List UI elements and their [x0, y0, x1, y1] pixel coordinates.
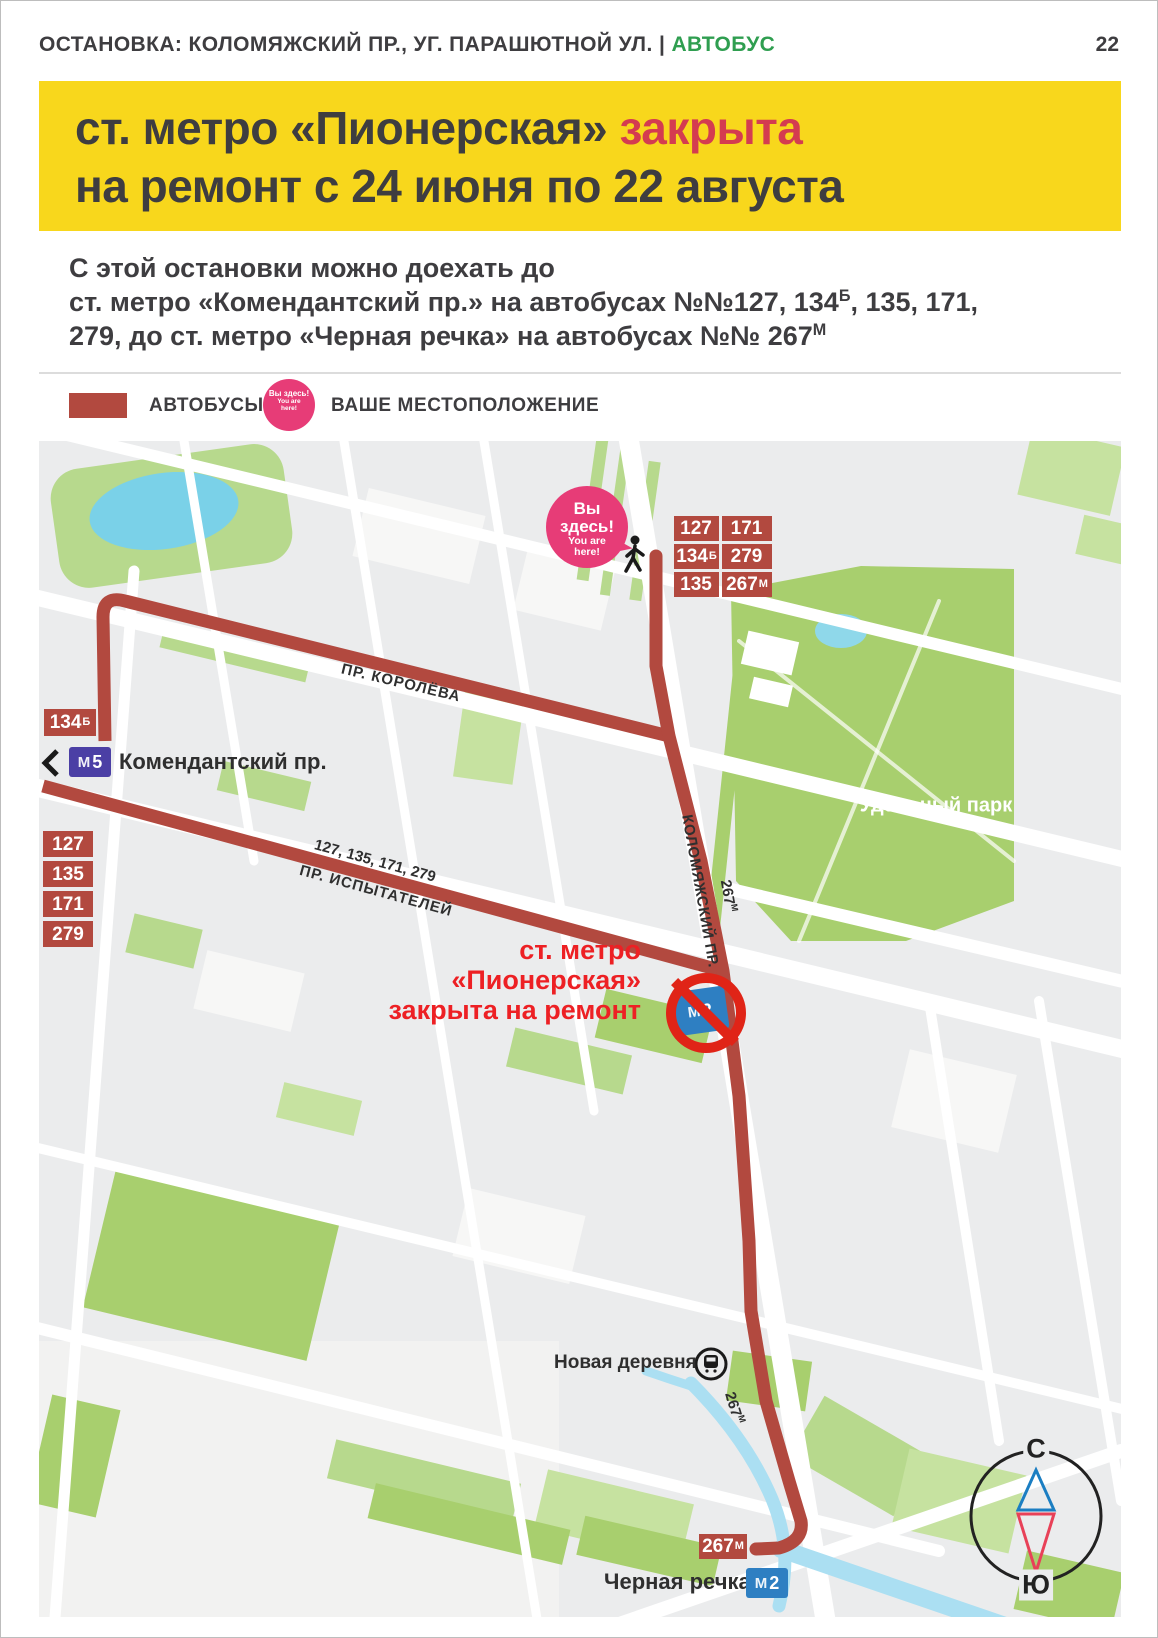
train-station-icon: [696, 1349, 726, 1379]
alert-line-2: на ремонт с 24 июня по 22 августа: [75, 157, 843, 215]
compass-south-label: Ю: [1019, 1570, 1053, 1601]
legend-bus-swatch: [69, 393, 127, 418]
arrow-left-icon: [39, 747, 63, 779]
west-badge-135: 135: [43, 861, 93, 887]
header: ОСТАНОВКА: КОЛОМЯЖСКИЙ ПР., УГ. ПАРАШЮТН…: [39, 33, 1121, 57]
alert-closed-word: закрыта: [620, 102, 803, 154]
komendantsky-label: Комендантский пр.: [119, 749, 327, 775]
badge-267m-south: 267М: [699, 1534, 747, 1559]
intro-line-2: ст. метро «Комендантский пр.» на автобус…: [69, 285, 1089, 319]
header-stop-name: КОЛОМЯЖСКИЙ ПР., УГ. ПАРАШЮТНОЙ УЛ.: [189, 33, 653, 56]
alert-title: ст. метро «Пионерская»: [75, 102, 607, 154]
you-are-here-marker: Выздесь! You arehere!: [546, 486, 628, 568]
stop-badge-267m: 267М: [722, 572, 772, 597]
udelny-park-area: [731, 566, 1014, 941]
stop-badge-127: 127: [674, 516, 719, 541]
stop-badge-134b: 134Б: [674, 544, 719, 569]
page-number: 22: [1096, 33, 1119, 57]
alert-banner: ст. метро «Пионерская» закрыта на ремонт…: [39, 81, 1121, 231]
stop-badge-135: 135: [674, 572, 719, 597]
chernaya-rechka-label: Черная речка: [604, 1569, 751, 1595]
header-divider: |: [659, 33, 665, 56]
intro-line-1: С этой остановки можно доехать до: [69, 251, 1089, 285]
map-canvas: [39, 441, 1121, 1617]
metro-icon-line2: М2: [746, 1568, 788, 1598]
compass-north-label: С: [1023, 1434, 1049, 1465]
legend-bus-label: АВТОБУСЫ: [149, 395, 264, 417]
pionerskaya-closed-note: ст. метро «Пионерская» закрыта на ремонт: [371, 935, 641, 1025]
metro-icon-line5: М5: [69, 747, 111, 777]
west-badge-127: 127: [43, 831, 93, 857]
stop-badge-279: 279: [722, 544, 772, 569]
alert-line-1: ст. метро «Пионерская» закрыта: [75, 99, 843, 157]
badge-134b-west: 134Б: [44, 709, 96, 736]
west-badge-171: 171: [43, 891, 93, 917]
separator-line: [39, 372, 1121, 374]
novaya-derevnya-label: Новая деревня: [554, 1352, 697, 1374]
poster-page: ОСТАНОВКА: КОЛОМЯЖСКИЙ ПР., УГ. ПАРАШЮТН…: [0, 0, 1158, 1638]
legend-you-are-here-icon: Вы здесь! You arehere!: [263, 379, 315, 431]
alert-banner-text: ст. метро «Пионерская» закрыта на ремонт…: [75, 99, 843, 215]
intro-paragraph: С этой остановки можно доехать до ст. ме…: [69, 251, 1089, 353]
legend-location-label: ВАШЕ МЕСТОПОЛОЖЕНИЕ: [331, 395, 599, 417]
udelny-park-label: Удельный парк: [860, 795, 1012, 818]
header-transport-mode: АВТОБУС: [671, 33, 775, 56]
route-map: Выздесь! You arehere! 127 171 134Б 279 1…: [39, 441, 1121, 1617]
stop-badge-171: 171: [722, 516, 772, 541]
intro-line-3: 279, до ст. метро «Черная речка» на авто…: [69, 319, 1089, 353]
header-stop-label: ОСТАНОВКА:: [39, 33, 182, 56]
west-badge-279: 279: [43, 921, 93, 947]
